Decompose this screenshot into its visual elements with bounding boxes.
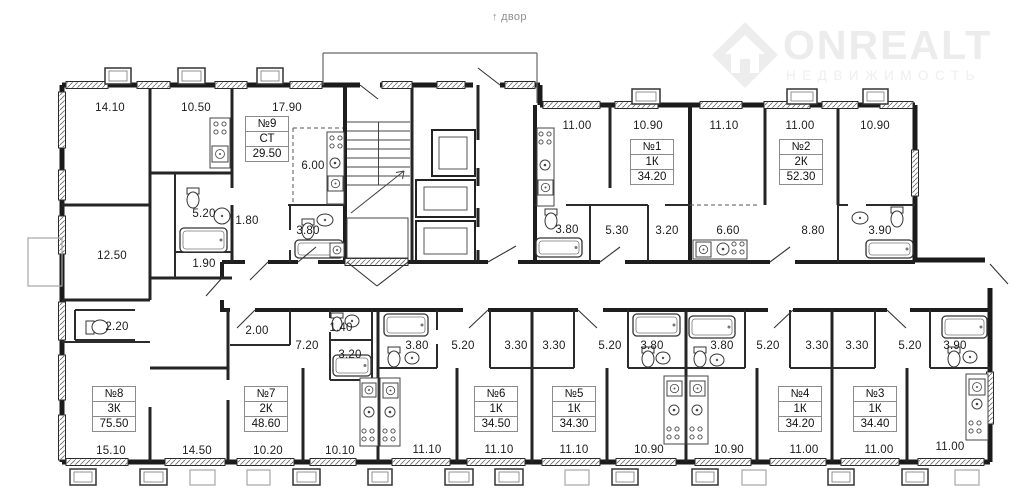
room-area-label: 11.00: [936, 441, 965, 453]
room-area-label: 10.90: [634, 444, 664, 456]
room-area-label: 2.00: [245, 325, 268, 337]
room-area-label: 10.50: [181, 102, 211, 114]
room-area-label: 3.80: [640, 340, 663, 352]
apartment-info-box: №11К34.20: [630, 139, 674, 185]
apartment-type: 2К: [245, 401, 287, 416]
room-area-label: 1.40: [329, 322, 352, 334]
apartment-area: 34.40: [854, 416, 896, 431]
room-area-label: 8.80: [801, 225, 824, 237]
room-area-label: 11.10: [710, 120, 739, 132]
room-area-label: 10.90: [860, 120, 890, 132]
room-area-label: 3.90: [868, 225, 891, 237]
apartment-info-box: №72К48.60: [244, 386, 288, 432]
room-area-label: 3.20: [338, 349, 361, 361]
room-area-label: 12.50: [97, 250, 127, 262]
apartment-number: №2: [780, 140, 822, 154]
apartment-area: 34.20: [779, 416, 821, 431]
room-area-label: 5.30: [605, 225, 628, 237]
apartment-area: 34.50: [475, 416, 517, 431]
floor-plan: ↑ двор ONREALT НЕДВИЖИМОСТЬ 14.1010.5017…: [0, 0, 1032, 489]
room-area-label: 11.10: [560, 444, 589, 456]
apartment-info-box: №31К34.40: [853, 386, 897, 432]
room-area-label: 11.00: [790, 444, 819, 456]
apartment-type: 2К: [780, 154, 822, 169]
room-area-label: 6.60: [716, 225, 739, 237]
room-area-label: 15.10: [96, 445, 126, 457]
apartment-area: 34.20: [631, 169, 673, 184]
room-area-label: 11.00: [786, 120, 815, 132]
staircase: [347, 122, 410, 258]
apartment-type: 1К: [631, 154, 673, 169]
room-area-label: 3.30: [805, 340, 828, 352]
room-area-label: 3.80: [555, 224, 578, 236]
room-area-label: 10.20: [253, 445, 283, 457]
apartment-number: №3: [854, 387, 896, 401]
apartment-info-box: №61К34.50: [474, 386, 518, 432]
canopy-outline: [323, 53, 537, 103]
apartment-area: 34.30: [553, 416, 595, 431]
apartment-type: СТ: [246, 131, 288, 146]
room-area-label: 10.90: [714, 444, 744, 456]
room-area-label: 3.80: [405, 340, 428, 352]
apartment-type: 1К: [553, 401, 595, 416]
apartment-number: №5: [553, 387, 595, 401]
apartment-area: 48.60: [245, 416, 287, 431]
apartment-area: 52.30: [780, 169, 822, 184]
room-area-label: 6.00: [301, 160, 324, 172]
room-area-label: 5.20: [192, 208, 215, 220]
apartment-number: №1: [631, 140, 673, 154]
room-area-label: 11.00: [563, 120, 592, 132]
apartment-info-box: №9СТ29.50: [245, 116, 289, 162]
apartment-info-box: №83К75.50: [92, 386, 136, 432]
apartment-number: №8: [93, 387, 135, 401]
elevators: [416, 130, 475, 261]
apartment-info-box: №41К34.20: [778, 386, 822, 432]
courtyard-direction-label: ↑ двор: [492, 11, 527, 23]
room-area-label: 3.30: [542, 340, 565, 352]
room-area-label: 5.20: [898, 340, 921, 352]
up-arrow-icon: ↑: [492, 11, 498, 23]
apartment-type: 1К: [854, 401, 896, 416]
room-area-label: 2.20: [105, 321, 128, 333]
room-area-label: 10.10: [325, 445, 355, 457]
apartment-area: 29.50: [246, 146, 288, 161]
room-area-label: 11.00: [865, 444, 894, 456]
room-area-label: 7.20: [295, 340, 318, 352]
room-area-label: 3.20: [655, 225, 678, 237]
apartment-number: №9: [246, 117, 288, 131]
room-area-label: 1.80: [235, 215, 258, 227]
room-area-label: 5.20: [756, 340, 779, 352]
apartment-number: №4: [779, 387, 821, 401]
apartment-type: 3К: [93, 401, 135, 416]
onrealt-logo-text: ONREALT: [783, 22, 992, 69]
room-area-label: 11.10: [413, 444, 442, 456]
room-area-label: 11.10: [485, 444, 514, 456]
room-area-label: 14.50: [182, 445, 212, 457]
onrealt-logo-subtitle: НЕДВИЖИМОСТЬ: [786, 68, 981, 83]
room-area-label: 3.30: [845, 340, 868, 352]
apartment-area: 75.50: [93, 416, 135, 431]
apartment-type: 1К: [779, 401, 821, 416]
apartment-info-box: №22К52.30: [779, 139, 823, 185]
room-area-label: 14.10: [95, 102, 125, 114]
room-area-label: 17.90: [272, 102, 302, 114]
room-area-label: 10.90: [633, 120, 663, 132]
room-area-label: 3.30: [504, 340, 527, 352]
room-area-label: 3.90: [943, 340, 966, 352]
room-area-label: 5.20: [598, 340, 621, 352]
room-area-label: 3.80: [296, 225, 319, 237]
apartment-number: №7: [245, 387, 287, 401]
apartment-type: 1К: [475, 401, 517, 416]
apartment-number: №6: [475, 387, 517, 401]
room-area-label: 3.80: [710, 340, 733, 352]
room-area-label: 5.20: [451, 340, 474, 352]
apartment-info-box: №51К34.30: [552, 386, 596, 432]
bathtub-fixtures: [180, 228, 987, 376]
room-area-label: 1.90: [192, 258, 215, 270]
courtyard-text: двор: [501, 11, 527, 23]
onrealt-house-icon: [710, 20, 780, 90]
walls-layer: [62, 85, 990, 462]
